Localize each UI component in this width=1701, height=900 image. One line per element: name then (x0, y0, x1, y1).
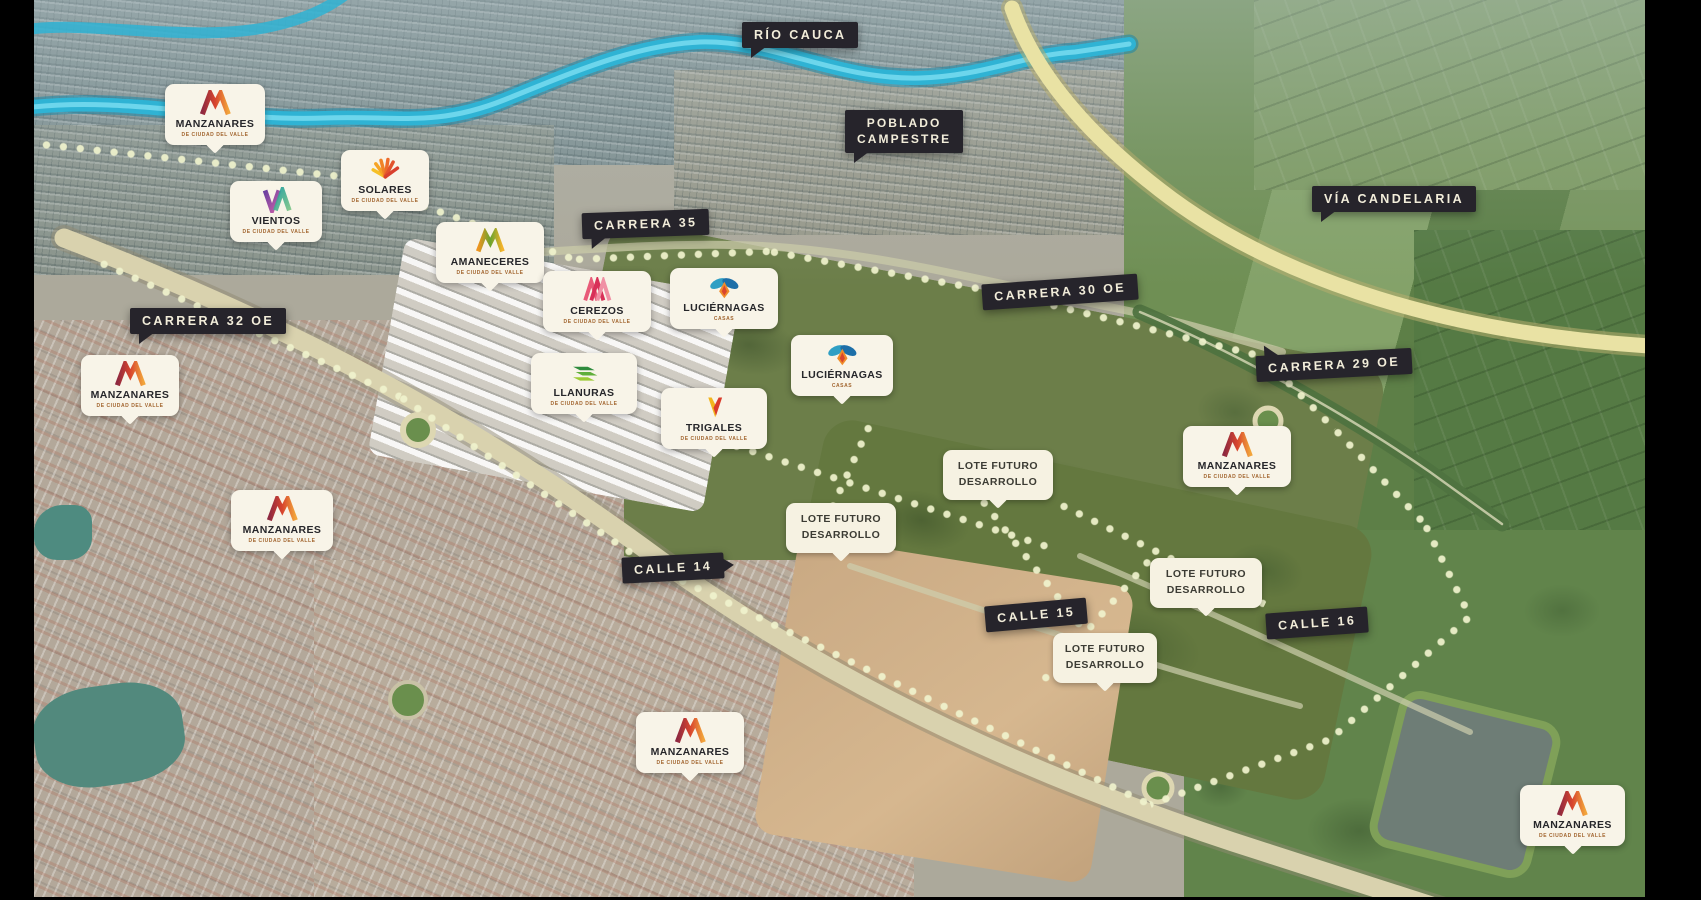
aerial-masterplan-screenshot: RÍO CAUCA POBLADO CAMPESTRE VÍA CANDELAR… (0, 0, 1701, 900)
road-label-text: CALLE 14 (634, 559, 713, 577)
solares-sun-icon (368, 156, 403, 182)
luciernagas-firefly-icon (707, 274, 742, 300)
project-subtitle: DE CIUDAD DEL VALLE (169, 132, 261, 138)
project-title: MANZANARES (169, 118, 261, 130)
vientos-va-icon (259, 187, 294, 213)
lot-label-line1: LOTE FUTURO (791, 512, 891, 528)
project-title: MANZANARES (235, 524, 329, 536)
project-subtitle: DE CIUDAD DEL VALLE (440, 270, 540, 276)
lot-label-line2: DESARROLLO (948, 475, 1048, 491)
project-badge-vientos[interactable]: VIENTOS DE CIUDAD DEL VALLE (230, 181, 322, 242)
manzanares-m-icon (1220, 432, 1255, 458)
llanuras-chevrons-icon (567, 359, 602, 385)
road-label-text: RÍO CAUCA (754, 28, 846, 42)
lot-label-line2: DESARROLLO (1058, 658, 1152, 674)
project-badge-manzanares-3[interactable]: MANZANARES DE CIUDAD DEL VALLE (231, 490, 333, 551)
road-label-calle-16: CALLE 16 (1265, 606, 1369, 639)
project-badge-manzanares-5[interactable]: MANZANARES DE CIUDAD DEL VALLE (636, 712, 744, 773)
manzanares-m-icon (113, 361, 148, 387)
project-badge-manzanares-1[interactable]: MANZANARES DE CIUDAD DEL VALLE (165, 84, 265, 145)
lot-future-development-label-1: LOTE FUTURO DESARROLLO (943, 450, 1053, 500)
road-label-carrera-35: CARRERA 35 (582, 209, 710, 239)
project-badge-solares[interactable]: SOLARES DE CIUDAD DEL VALLE (341, 150, 429, 211)
project-subtitle: CASAS (674, 316, 774, 322)
project-title: MANZANARES (640, 746, 740, 758)
project-subtitle: DE CIUDAD DEL VALLE (640, 760, 740, 766)
road-label-text: CARRERA 30 OE (994, 280, 1127, 303)
project-title: SOLARES (345, 184, 425, 196)
project-badge-amaneceres[interactable]: AMANECERES DE CIUDAD DEL VALLE (436, 222, 544, 283)
project-badge-manzanares-2[interactable]: MANZANARES DE CIUDAD DEL VALLE (81, 355, 179, 416)
road-label-carrera-29-oe: CARRERA 29 OE (1255, 348, 1412, 382)
road-label-text: CARRERA 29 OE (1268, 355, 1401, 376)
project-badge-luciernagas-2[interactable]: LUCIÉRNAGAS CASAS (791, 335, 893, 396)
road-label-poblado-campestre: POBLADO CAMPESTRE (845, 110, 963, 153)
road-label-rio-cauca: RÍO CAUCA (742, 22, 858, 48)
road-label-text: CARRERA 32 OE (142, 314, 274, 328)
project-title: LUCIÉRNAGAS (795, 369, 889, 381)
road-label-text: CARRERA 35 (594, 215, 698, 233)
road-label-text: CALLE 16 (1278, 613, 1357, 632)
project-subtitle: DE CIUDAD DEL VALLE (234, 229, 318, 235)
project-subtitle: DE CIUDAD DEL VALLE (665, 436, 763, 442)
project-subtitle: DE CIUDAD DEL VALLE (535, 401, 633, 407)
road-label-via-candelaria: VÍA CANDELARIA (1312, 186, 1476, 212)
project-subtitle: DE CIUDAD DEL VALLE (85, 403, 175, 409)
cerezos-stripes-icon (580, 277, 615, 303)
project-title: MANZANARES (1187, 460, 1287, 472)
project-title: LUCIÉRNAGAS (674, 302, 774, 314)
road-label-text-line2: CAMPESTRE (857, 132, 951, 148)
project-title: MANZANARES (1524, 819, 1621, 831)
project-title: CEREZOS (547, 305, 647, 317)
lot-label-line1: LOTE FUTURO (948, 459, 1048, 475)
manzanares-m-icon (1555, 791, 1590, 817)
project-badge-cerezos[interactable]: CEREZOS DE CIUDAD DEL VALLE (543, 271, 651, 332)
map-label-layer: RÍO CAUCA POBLADO CAMPESTRE VÍA CANDELAR… (0, 0, 1701, 900)
project-subtitle: DE CIUDAD DEL VALLE (1187, 474, 1287, 480)
project-badge-manzanares-4[interactable]: MANZANARES DE CIUDAD DEL VALLE (1183, 426, 1291, 487)
project-subtitle: CASAS (795, 383, 889, 389)
road-label-text: CALLE 15 (997, 605, 1076, 626)
road-label-carrera-32-oe: CARRERA 32 OE (130, 308, 286, 334)
project-title: LLANURAS (535, 387, 633, 399)
lot-label-line2: DESARROLLO (1155, 583, 1257, 599)
project-badge-luciernagas-1[interactable]: LUCIÉRNAGAS CASAS (670, 268, 778, 329)
project-subtitle: DE CIUDAD DEL VALLE (1524, 833, 1621, 839)
luciernagas-firefly-icon (825, 341, 860, 367)
trigales-wheat-icon (697, 394, 732, 420)
road-label-calle-15: CALLE 15 (984, 598, 1088, 633)
project-subtitle: DE CIUDAD DEL VALLE (345, 198, 425, 204)
project-badge-trigales[interactable]: TRIGALES DE CIUDAD DEL VALLE (661, 388, 767, 449)
project-title: AMANECERES (440, 256, 540, 268)
lot-future-development-label-4: LOTE FUTURO DESARROLLO (1053, 633, 1157, 683)
amaneceres-mountain-icon (473, 228, 508, 254)
project-subtitle: DE CIUDAD DEL VALLE (547, 319, 647, 325)
project-subtitle: DE CIUDAD DEL VALLE (235, 538, 329, 544)
project-title: TRIGALES (665, 422, 763, 434)
project-badge-llanuras[interactable]: LLANURAS DE CIUDAD DEL VALLE (531, 353, 637, 414)
lot-future-development-label-2: LOTE FUTURO DESARROLLO (786, 503, 896, 553)
manzanares-m-icon (198, 90, 233, 116)
road-label-text: VÍA CANDELARIA (1324, 192, 1464, 206)
road-label-calle-14: CALLE 14 (621, 552, 724, 583)
lot-label-line1: LOTE FUTURO (1058, 642, 1152, 658)
road-label-carrera-30-oe: CARRERA 30 OE (981, 274, 1139, 311)
lot-label-line2: DESARROLLO (791, 528, 891, 544)
manzanares-m-icon (265, 496, 300, 522)
lot-future-development-label-3: LOTE FUTURO DESARROLLO (1150, 558, 1262, 608)
project-title: VIENTOS (234, 215, 318, 227)
manzanares-m-icon (673, 718, 708, 744)
road-label-text-line1: POBLADO (857, 116, 951, 132)
project-title: MANZANARES (85, 389, 175, 401)
lot-label-line1: LOTE FUTURO (1155, 567, 1257, 583)
project-badge-manzanares-6[interactable]: MANZANARES DE CIUDAD DEL VALLE (1520, 785, 1625, 846)
